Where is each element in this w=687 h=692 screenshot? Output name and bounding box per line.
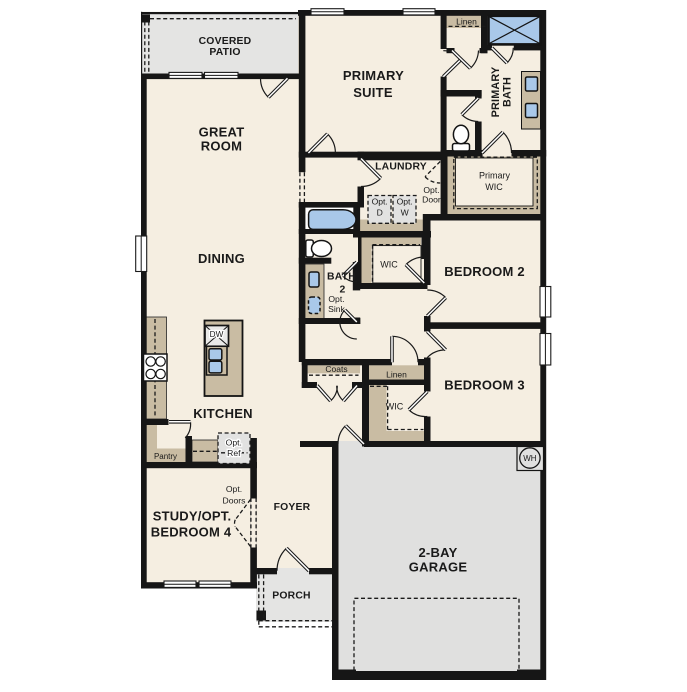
svg-text:2-BAY: 2-BAY — [418, 545, 457, 560]
svg-text:Coats: Coats — [325, 364, 347, 374]
svg-text:BATH: BATH — [502, 77, 514, 107]
svg-text:BEDROOM 2: BEDROOM 2 — [444, 264, 525, 279]
svg-text:D: D — [377, 208, 383, 218]
svg-text:W: W — [401, 208, 410, 218]
svg-text:Linen: Linen — [456, 16, 477, 26]
svg-text:Opt.: Opt. — [226, 438, 242, 448]
svg-text:Pantry: Pantry — [154, 452, 177, 461]
svg-text:WIC: WIC — [386, 402, 404, 412]
svg-text:DINING: DINING — [198, 251, 245, 266]
svg-text:COVERED: COVERED — [199, 36, 252, 47]
svg-text:Ref: Ref — [227, 448, 241, 458]
svg-text:LAUNDRY: LAUNDRY — [375, 162, 427, 173]
svg-text:Opt.: Opt. — [226, 484, 242, 494]
svg-text:PRIMARY: PRIMARY — [490, 66, 502, 117]
svg-text:DW: DW — [210, 330, 224, 339]
svg-text:PRIMARY: PRIMARY — [343, 68, 404, 83]
svg-text:Sink: Sink — [328, 304, 345, 314]
svg-text:Primary: Primary — [479, 171, 510, 181]
svg-text:WIC: WIC — [380, 260, 398, 270]
svg-text:SUITE: SUITE — [353, 85, 393, 100]
svg-text:FOYER: FOYER — [274, 502, 311, 513]
svg-text:Opt.: Opt. — [372, 197, 388, 207]
svg-text:STUDY/OPT.: STUDY/OPT. — [153, 509, 232, 524]
svg-text:GREAT: GREAT — [199, 125, 245, 140]
svg-text:Opt.: Opt. — [397, 197, 413, 207]
svg-text:Opt.: Opt. — [328, 294, 344, 304]
svg-text:ROOM: ROOM — [201, 139, 242, 154]
svg-text:BATH: BATH — [327, 271, 356, 282]
svg-text:Door: Door — [422, 195, 441, 205]
svg-text:PATIO: PATIO — [209, 47, 240, 58]
svg-text:BEDROOM 4: BEDROOM 4 — [151, 525, 232, 540]
svg-text:Opt.: Opt. — [423, 185, 439, 195]
svg-text:WIC: WIC — [485, 182, 503, 192]
svg-text:GARAGE: GARAGE — [409, 559, 468, 574]
svg-text:WH: WH — [523, 454, 537, 463]
svg-text:PORCH: PORCH — [272, 590, 311, 601]
svg-text:KITCHEN: KITCHEN — [193, 406, 253, 421]
svg-text:Linen: Linen — [386, 369, 407, 379]
svg-text:BEDROOM 3: BEDROOM 3 — [444, 378, 525, 393]
svg-text:Doors: Doors — [223, 496, 246, 506]
